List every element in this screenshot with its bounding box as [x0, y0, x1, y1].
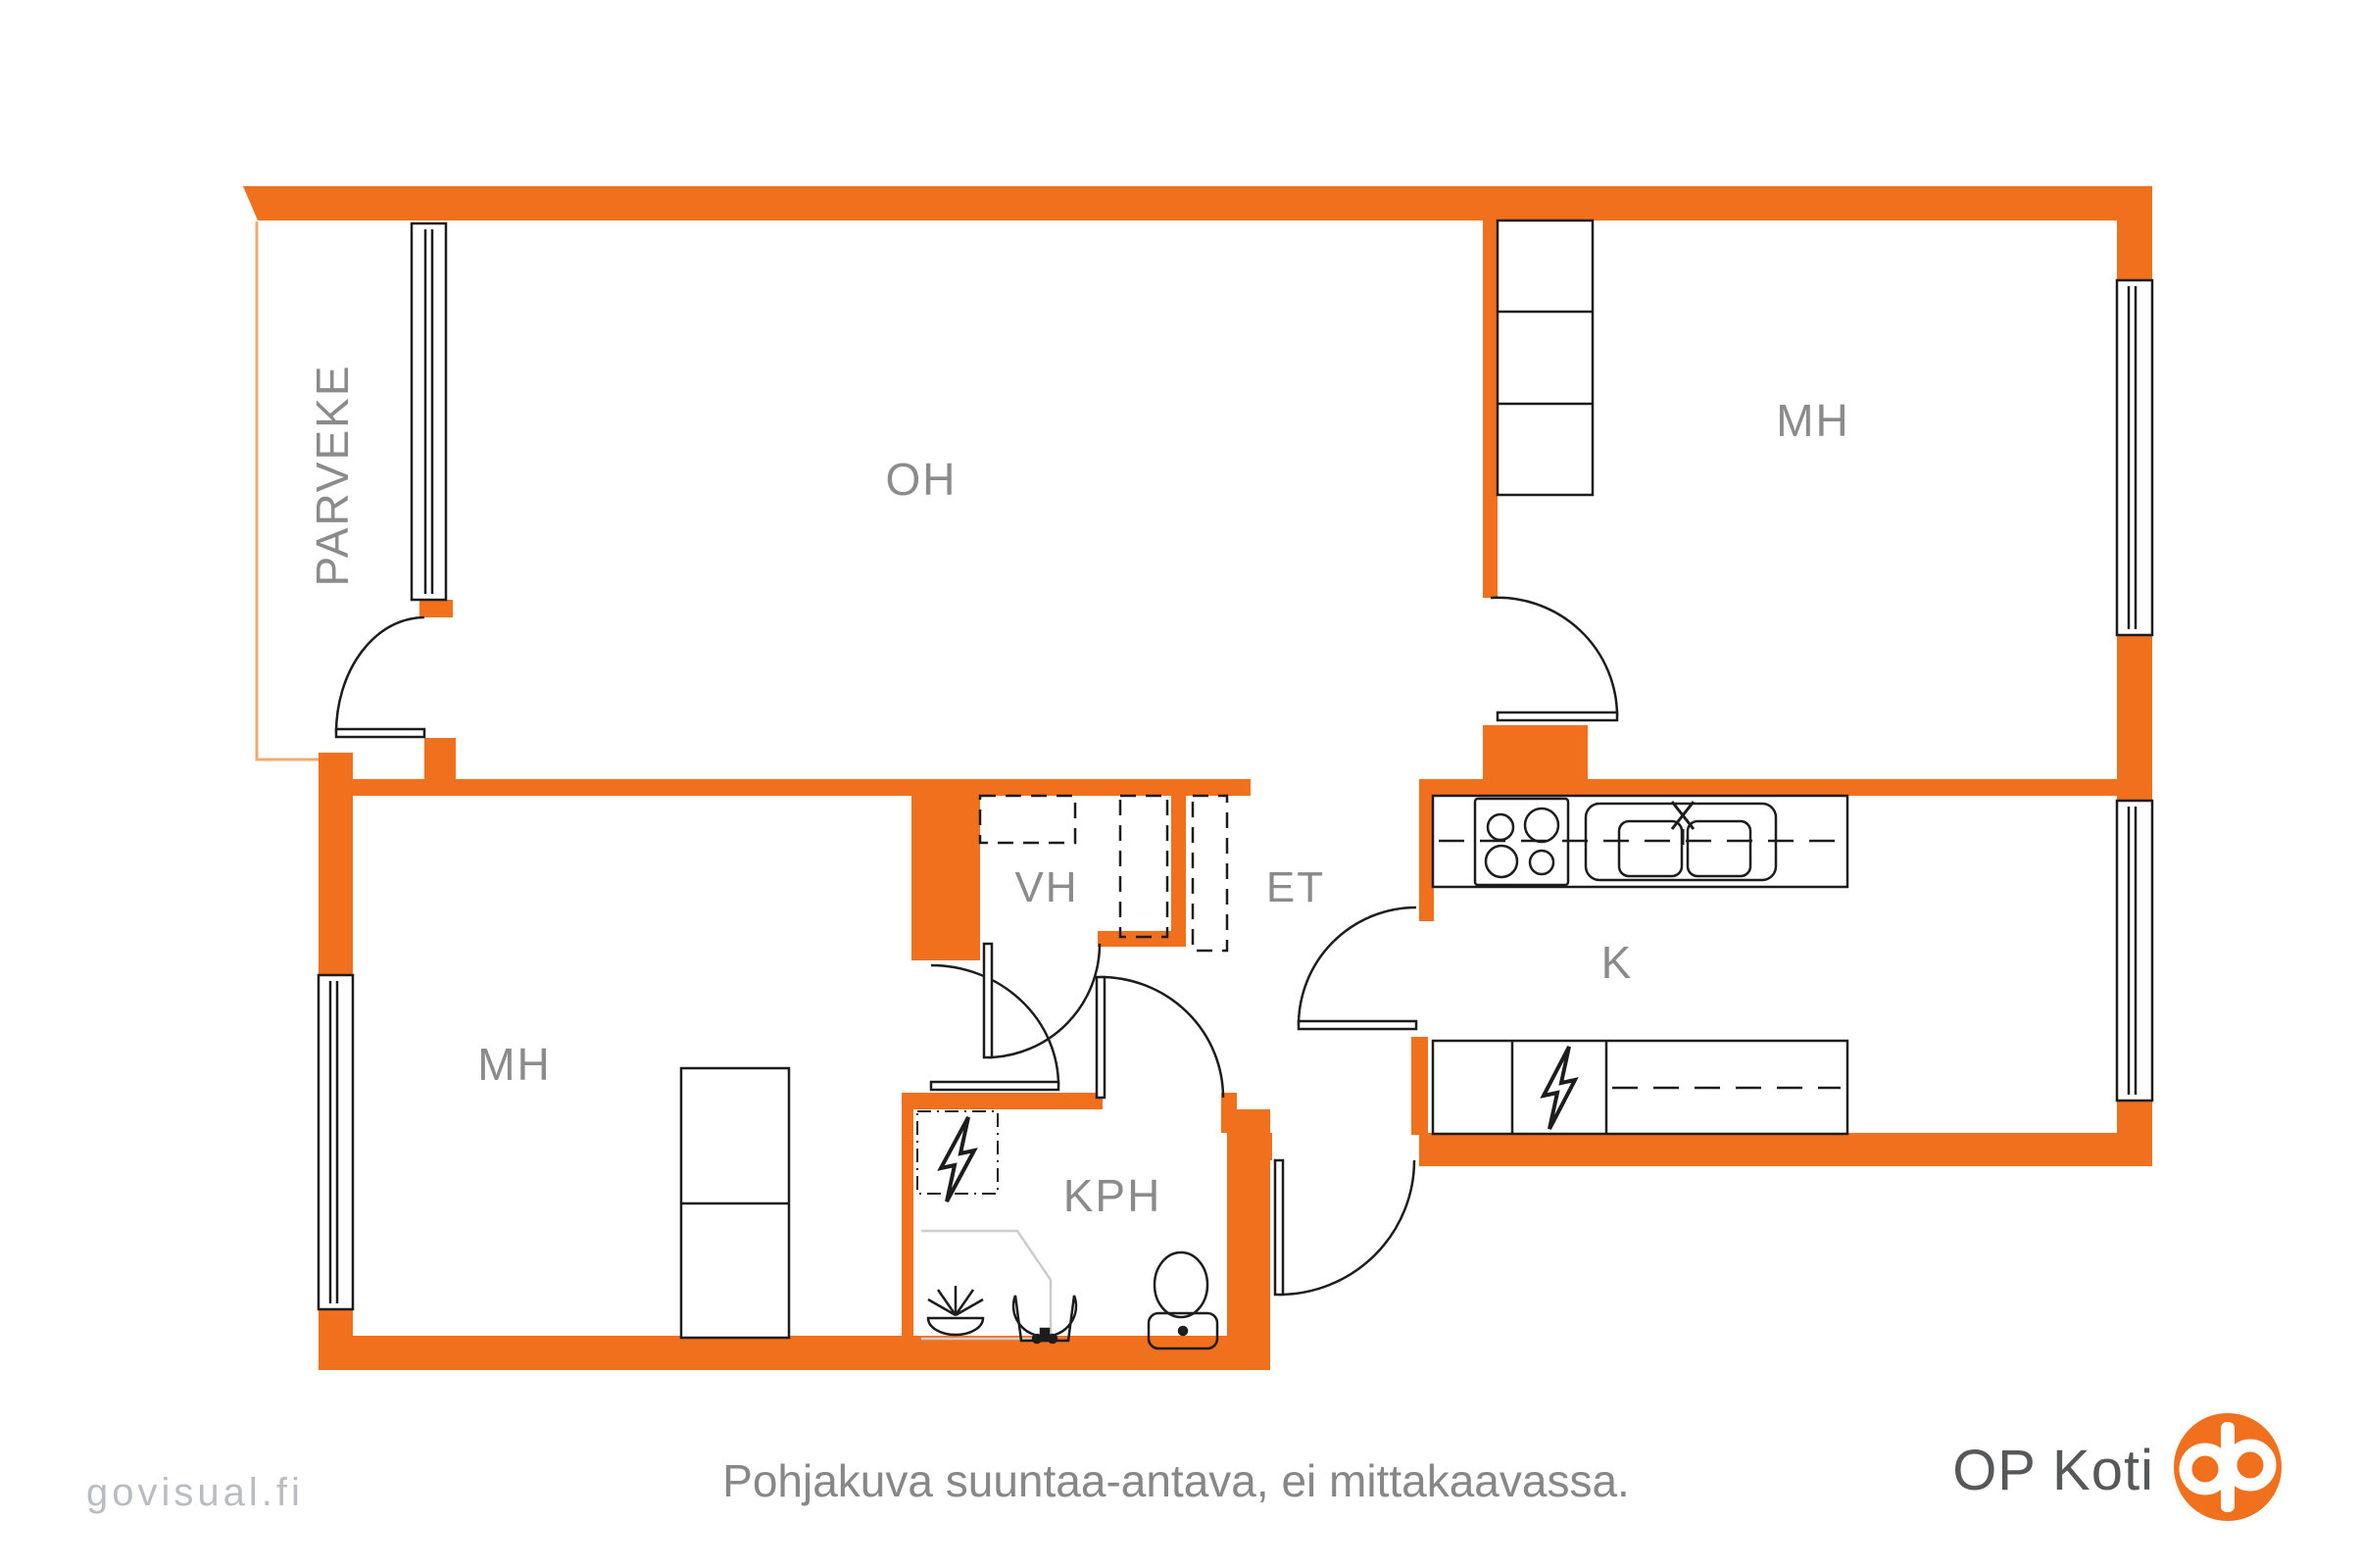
door-vh [984, 944, 1100, 1057]
window-mh-right [2117, 280, 2152, 635]
room-label-mh-bottom: MH [477, 1039, 552, 1090]
room-label-k: K [1601, 937, 1634, 988]
balcony-window [412, 223, 446, 600]
lightning-icon-bathroom [941, 1117, 974, 1201]
door-mh-bottom [931, 965, 1058, 1090]
door-entry [1275, 1160, 1414, 1295]
wall-right [2117, 186, 2152, 282]
wall-bottom [319, 1336, 1270, 1370]
wall-top [243, 186, 2152, 220]
wall-kph-top [902, 1093, 1103, 1109]
wall-vh-left [911, 794, 980, 960]
wardrobe-mh-bottom [681, 1068, 789, 1338]
room-label-kph: KPH [1063, 1170, 1162, 1221]
room-label-et: ET [1266, 863, 1325, 911]
wall-et-k-divider [1411, 1037, 1428, 1135]
kitchen-fixtures [1433, 796, 1847, 1134]
watermark: govisual.fi [86, 1471, 304, 1514]
room-label-vh: VH [1014, 863, 1078, 911]
wardrobe-mh-top [1498, 220, 1593, 495]
disclaimer: Pohjakuva suuntaa-antava, ei mittakaavas… [722, 1455, 1630, 1506]
door-kph [1097, 977, 1223, 1098]
shower-icon [921, 1231, 1051, 1339]
window-kitchen-right [2117, 801, 2152, 1101]
door-mh-top [1491, 598, 1617, 720]
wall-oh-bottom [350, 779, 1251, 796]
wall-right [2117, 635, 2152, 801]
wall-entry-stub [1253, 1133, 1272, 1160]
bathroom-fixtures [917, 1111, 1217, 1348]
brand-text: OP Koti [1952, 1439, 2154, 1502]
wall-left [319, 753, 353, 977]
walls [243, 186, 2152, 1370]
footer: govisual.fi Pohjakuva suuntaa-antava, ei… [86, 1413, 2282, 1521]
floor-plan: PARVEKE OH MH VH ET K MH KPH govisual.fi… [0, 0, 2360, 1568]
balcony-door [336, 617, 424, 737]
wall-balcony-threshold [419, 600, 453, 617]
wall-vh-step [1098, 931, 1186, 947]
washbasin-fan-icon [928, 1286, 983, 1335]
toilet-icon [1149, 1252, 1217, 1348]
room-label-parveke: PARVEKE [307, 364, 358, 586]
wall-vh-divider [1171, 796, 1186, 933]
op-logo-icon [2174, 1413, 2282, 1521]
wall-oh-mh-divider [1483, 220, 1498, 598]
window-mh-bottom-left [319, 975, 353, 1309]
wall-mh-door-block [1483, 725, 1588, 782]
room-label-mh-top: MH [1776, 395, 1850, 446]
wall-kph-left [902, 1093, 913, 1370]
room-label-oh: OH [886, 454, 958, 505]
washbasin-icon [1013, 1296, 1076, 1343]
wall-kitchen-bottom [1419, 1133, 2152, 1166]
wall-balcony-pier [424, 738, 456, 781]
floor-plan-page: PARVEKE OH MH VH ET K MH KPH govisual.fi… [0, 0, 2360, 1568]
door-kitchen [1299, 907, 1416, 1029]
